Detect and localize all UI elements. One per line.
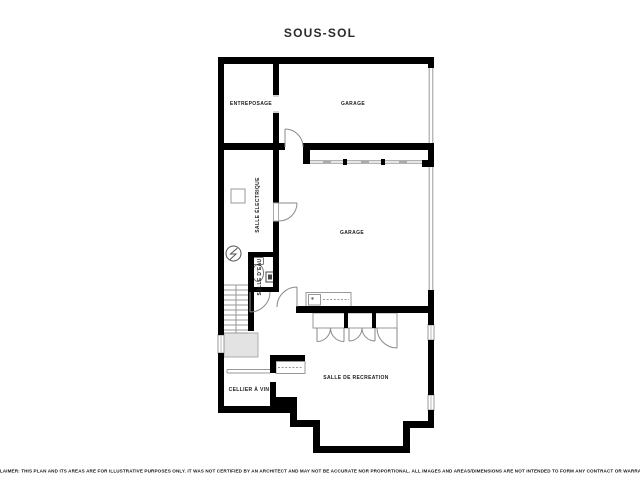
floorplan-page: SOUS-SOL — [0, 0, 640, 480]
closet-double-door-1 — [317, 328, 344, 342]
room-label-salle-deau: SALLE D'EAU — [257, 259, 263, 296]
floorplan-drawing — [0, 0, 640, 480]
room-label-garage-upper: GARAGE — [341, 101, 365, 107]
room-label-salle-recreation: SALLE DE RECREATION — [323, 375, 388, 381]
door-hall-to-recreation — [277, 287, 297, 307]
door-storage-wall — [285, 129, 303, 147]
electrical-equipment-box — [231, 189, 245, 203]
window-right-wall-lower — [428, 395, 434, 410]
workbench-counter — [306, 293, 351, 308]
closet-double-door-2 — [349, 328, 375, 341]
room-label-cellier: CELLIER À VIN — [229, 387, 270, 393]
window-left-wall — [218, 335, 224, 353]
room-label-salle-electrique: SALLE ÉLECTRIQUE — [255, 177, 261, 233]
disclaimer-text: DISCLAIMER: THIS PLAN AND ITS AREAS ARE … — [0, 469, 640, 474]
opening-ticks-storage-garage — [273, 96, 279, 112]
closet-single-door — [377, 328, 397, 348]
circle-lightning-icon — [226, 246, 241, 261]
stairs-icon — [224, 285, 248, 333]
room-label-garage-main: GARAGE — [340, 230, 364, 236]
garage-door-band-interior — [310, 159, 422, 165]
closet-bay — [313, 313, 397, 328]
door-electrical-to-garage — [274, 203, 298, 221]
wine-rack-counter — [227, 370, 270, 374]
understair-storage — [224, 333, 258, 357]
garage-door-band-upper-right — [428, 68, 434, 143]
sink-icon — [266, 272, 274, 282]
bar-counter — [276, 362, 305, 374]
room-label-entreposage: ENTREPOSAGE — [230, 101, 272, 107]
window-right-wall-upper — [428, 325, 434, 340]
garage-door-band-main-right — [428, 167, 434, 290]
